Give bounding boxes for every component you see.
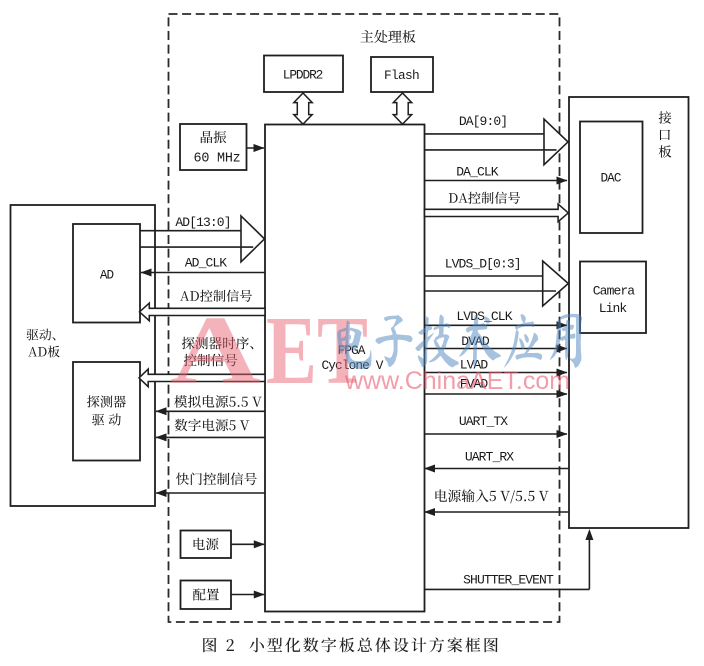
svg-text:Camera: Camera — [593, 283, 636, 298]
svg-text:DA_CLK: DA_CLK — [456, 164, 499, 179]
svg-text:www.ChinaAET.com: www.ChinaAET.com — [344, 367, 570, 395]
svg-text:AD_CLK: AD_CLK — [185, 256, 228, 271]
svg-text:LPDDR2: LPDDR2 — [283, 68, 323, 83]
svg-text:LVDS_D[0:3]: LVDS_D[0:3] — [445, 256, 521, 271]
svg-text:LVDS_CLK: LVDS_CLK — [456, 309, 512, 324]
svg-text:UART_TX: UART_TX — [459, 414, 508, 429]
svg-text:A: A — [170, 297, 261, 405]
svg-text:Flash: Flash — [384, 68, 419, 83]
svg-text:UART_RX: UART_RX — [465, 450, 514, 465]
svg-text:AD: AD — [100, 269, 114, 283]
svg-text:AD[13:0]: AD[13:0] — [175, 215, 230, 230]
svg-text:DA[9:0]: DA[9:0] — [459, 114, 507, 129]
svg-text:Link: Link — [599, 301, 628, 316]
svg-text:60 MHz: 60 MHz — [193, 151, 240, 166]
svg-text:DAC: DAC — [601, 172, 622, 186]
svg-text:SHUTTER_EVENT: SHUTTER_EVENT — [463, 572, 554, 587]
